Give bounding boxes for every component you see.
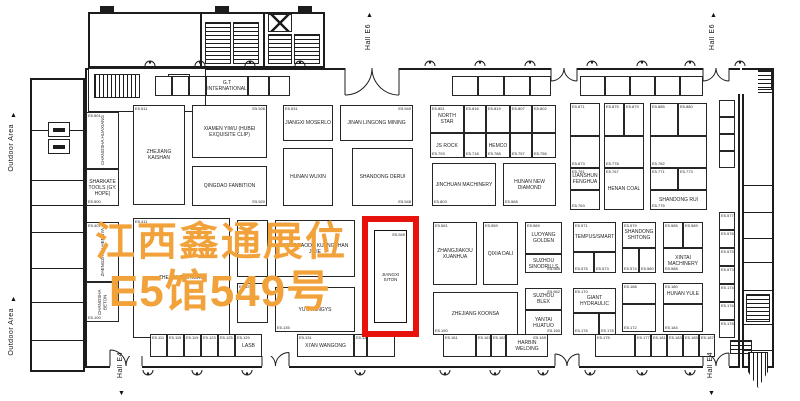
hall-e6-label: Hall E6 xyxy=(709,24,716,50)
booth-number: E5.807 xyxy=(512,107,525,111)
booth-number: E5.529 xyxy=(239,285,252,289)
booth: HARBIN WELDINGE5.169 xyxy=(506,334,548,357)
booth-number: E5.500 xyxy=(88,200,101,204)
booth: QINGDAO FANBITIONE5.520 xyxy=(192,166,267,206)
booth-number: E5.577 xyxy=(721,214,734,218)
booth-number: E5.176 xyxy=(721,304,734,308)
booth: E5.589 xyxy=(683,222,703,248)
booth: E5.183 xyxy=(667,334,683,357)
booth: YANTAI HUATUOE5.160 xyxy=(525,310,562,335)
booth-number: E5.575 xyxy=(575,267,588,271)
booth: JIANGXI MOSERLOE5.531 xyxy=(283,105,333,141)
booth: E5.819 xyxy=(486,105,510,133)
booth-number: E5.525 xyxy=(239,222,252,226)
booth: E5.111 xyxy=(150,334,167,357)
booth: E5.529 xyxy=(237,283,268,323)
booth: CHANGSHA BETONE5.100 xyxy=(86,282,119,322)
booth-label: HUNAN NEW DIAMOND xyxy=(504,179,555,191)
booth: ZHANGJIAKOU XUANHUAE5.561 xyxy=(433,222,477,285)
booth-label: HEMCO xyxy=(488,143,509,149)
booth xyxy=(172,76,189,96)
booth: E5.763 xyxy=(570,190,600,210)
booth xyxy=(680,76,703,96)
booth: E5.871 xyxy=(570,103,600,136)
booth: E5.168 xyxy=(622,283,656,304)
booth-number: E5.793 xyxy=(432,152,445,156)
booth-number: E5.100 xyxy=(88,316,101,320)
booth: HEMCOE5.788 xyxy=(486,133,510,158)
booth: ZHEJIANG KOONSAE5.150 xyxy=(433,292,518,335)
booth-label: TEMPUS/SMART xyxy=(574,234,616,240)
booth-number: E5.803 xyxy=(434,200,447,204)
booth-number: E5.531 xyxy=(285,107,298,111)
booth: E5.525 xyxy=(237,220,268,277)
booth-number: E5.782 xyxy=(652,162,665,166)
booth: E5.123 xyxy=(201,334,218,357)
booth-number: E5.819 xyxy=(488,107,501,111)
booth-label: ZHEJIANG ZHIGAO xyxy=(158,275,205,281)
booth: E5.119 xyxy=(184,334,201,357)
booth-number: E5.176 xyxy=(575,329,588,333)
booth: E5.175 xyxy=(595,334,635,357)
booth-number: E5.160 xyxy=(547,329,560,333)
booth: E5.580 xyxy=(639,248,656,273)
booth-number: E5.875 xyxy=(606,105,619,109)
booth: XIAMEN YIWU (HUBEI EXQUISITE CLIP)E5.526 xyxy=(192,105,267,158)
booth: E5.771 xyxy=(650,168,678,190)
booth: XINTAI MACHINERYE5.588 xyxy=(663,248,703,273)
down-arrow-icon: ▼ xyxy=(708,390,715,397)
booth-label: LASB xyxy=(241,343,256,349)
booth xyxy=(504,76,530,96)
booth: E5.782 xyxy=(650,136,707,168)
booth: E5.167 xyxy=(476,334,491,357)
booth-number: E5.871 xyxy=(572,105,585,109)
booth xyxy=(630,76,655,96)
booth-label: JINAN LINGONG MINING xyxy=(346,120,406,126)
booth-number: E5.401 xyxy=(88,224,101,228)
booth: E5.125 xyxy=(218,334,235,357)
booth-number: E5.575 xyxy=(721,250,734,254)
booth: E5.115 xyxy=(167,334,184,357)
booth-number: E5.576 xyxy=(721,232,734,236)
booth-number: E5.585 xyxy=(665,224,678,228)
booth-label: JS ROCK xyxy=(435,143,459,149)
booth-label: JIANGXI MOSERLO xyxy=(284,120,332,126)
booth-label: SHARKATE TOOLS (GY. HOPE) xyxy=(87,179,118,197)
booth-number: E5.131 xyxy=(299,336,312,340)
booth xyxy=(605,76,630,96)
booth-label: XIAMEN YIWU (HUBEI EXQUISITE CLIP) xyxy=(193,126,266,138)
booth-number: E5.561 xyxy=(435,224,448,228)
booth: E5.576 xyxy=(719,230,735,248)
booth: CHANGSHA HUAXIANGE5.501 xyxy=(86,112,119,169)
booth xyxy=(530,76,551,96)
up-arrow-icon: ▲ xyxy=(10,112,17,119)
booth: E5.174 xyxy=(719,284,735,302)
booth: JINAN LINGONG MININGE5.540 xyxy=(340,105,413,141)
booth: G.T INTERNATIONAL xyxy=(206,76,248,96)
booth-number: E5.187 xyxy=(701,336,714,340)
booth-number: E5.816 xyxy=(466,107,479,111)
booth-e5-549: E5.549 JIANGXI SITON xyxy=(374,230,407,323)
booth-label: HUNAN YULE xyxy=(666,291,700,297)
booth: NORTH STARE5.851 xyxy=(430,105,464,133)
booth: E5.880 xyxy=(678,103,707,136)
booth: E5.778 xyxy=(604,136,644,168)
booth-label: CHANGSHA HUAXIANG xyxy=(99,115,106,165)
hall-e6-label: Hall E6 xyxy=(365,24,372,50)
booth: SUZHOU SINODRILLSE5.565 xyxy=(525,254,562,273)
up-arrow-icon: ▲ xyxy=(710,12,717,19)
booth-number: E5.163 xyxy=(493,336,506,340)
booth-number: E5.775 xyxy=(652,204,665,208)
booth xyxy=(269,76,290,96)
booth-label: WANGJIAODU KUANGSHAN JIXIE xyxy=(276,243,354,255)
booth-label: QIXIA DALI xyxy=(487,251,515,257)
booth: ZHEJIANG ZHIGAOE5.411 xyxy=(133,218,230,338)
booth-number: E5.573 xyxy=(596,267,609,271)
booth: E5.757 xyxy=(510,133,532,158)
booth: E5.176 xyxy=(719,302,735,320)
booth-label: HUNAN WUXIN xyxy=(289,174,327,180)
booth: E5.178 xyxy=(719,320,735,338)
booth-number: E5.880 xyxy=(680,105,693,109)
booth-number: E5.177 xyxy=(637,336,650,340)
booth-label: YUTA XINGYS xyxy=(298,307,333,313)
booth-label: SHANDONG DERUI xyxy=(359,174,407,180)
booth xyxy=(719,100,735,117)
up-arrow-icon: ▲ xyxy=(10,296,17,303)
booth-number: E5.562 xyxy=(547,290,560,294)
booth: E5.807 xyxy=(510,105,532,133)
booth: SHARKATE TOOLS (GY. HOPE)E5.500 xyxy=(86,169,119,206)
booth xyxy=(719,134,735,151)
booth-label: G.T INTERNATIONAL xyxy=(206,80,248,92)
booth: E5.879 xyxy=(624,103,644,136)
booth-number: E5.565 xyxy=(547,267,560,271)
booth-number: E5.501 xyxy=(88,114,101,118)
booth: ZHEJIANG KAISHANE5.511 xyxy=(133,105,185,205)
booth: E5.873 xyxy=(570,136,600,168)
booth-label: LIANSHUN FENGHUA xyxy=(571,173,599,185)
booth: E5.885 xyxy=(650,103,678,136)
booth-label: YANTAI HUATUO xyxy=(526,317,561,329)
booth: E5.773 xyxy=(678,168,707,190)
booth-number: E5.175 xyxy=(597,336,610,340)
booth: E5.176 xyxy=(573,313,599,335)
booth: E5.177 xyxy=(635,334,651,357)
booth xyxy=(580,76,605,96)
booth-number: E5.161 xyxy=(445,336,458,340)
booth: E5.573 xyxy=(594,252,616,273)
booth-number: E5.174 xyxy=(721,286,734,290)
booth-label: HARBIN WELDING xyxy=(507,340,547,352)
booth: LUOYANG GOLDENE5.569 xyxy=(525,222,562,254)
booth-number: E5.574 xyxy=(624,267,637,271)
booth: E5.756 xyxy=(532,133,556,158)
booth-number: E5.589 xyxy=(685,224,698,228)
booth-number: E5.135 xyxy=(277,326,290,330)
booth-number: E5.718 xyxy=(466,152,479,156)
booth-label: JINCHUAN MACHINERY xyxy=(435,182,494,188)
booth: E5.184 xyxy=(663,304,703,332)
booth-number: E5.548 xyxy=(398,200,411,204)
booth-number: E5.756 xyxy=(534,152,547,156)
booth: E5.161 xyxy=(443,334,476,357)
booth: E5.573 xyxy=(719,266,735,284)
booth xyxy=(367,334,395,357)
booth-number: E5.123 xyxy=(203,336,216,340)
booth-number: E5.184 xyxy=(665,326,678,330)
booth: E5.575 xyxy=(573,252,594,273)
booth xyxy=(248,76,269,96)
booth-number: E5.181 xyxy=(653,336,666,340)
booth-number: E5.571 xyxy=(575,224,588,228)
booth: E5.575 xyxy=(719,248,735,266)
booth-label: LUOYANG GOLDEN xyxy=(526,232,561,244)
booth: JINCHUAN MACHINERYE5.803 xyxy=(432,163,496,206)
booth-number: E5.526 xyxy=(252,107,265,111)
booth-number: E5.178 xyxy=(601,329,614,333)
booth-number: E5.588 xyxy=(665,267,678,271)
booth-label: ZHEJIANG KOONSA xyxy=(451,311,501,317)
booth-label: SHANDONG SHITONG xyxy=(623,229,655,241)
booth: E5.574 xyxy=(622,248,639,273)
booth-number: E5.573 xyxy=(721,268,734,272)
booth-number: E5.885 xyxy=(652,105,665,109)
booth-label: GIANT HYDRAULIC xyxy=(574,295,615,307)
booth-label: ZHEJIANG KAISHAN xyxy=(134,149,184,161)
booth-number: E5.180 xyxy=(665,285,678,289)
booth: HUNAN YULEE5.180 xyxy=(663,283,703,304)
booth-number: E5.767 xyxy=(606,170,619,174)
booth: ZHENGZHOU HENGYAE5.401 xyxy=(86,222,119,282)
outdoor-area-label: Outdoor Area xyxy=(8,308,15,356)
booth: SHANDONG DERUIE5.548 xyxy=(352,148,413,206)
exhibition-floor-plan: CHANGSHA HUAXIANGE5.501SHARKATE TOOLS (G… xyxy=(0,0,800,401)
booth-label: XI'AN WANGONG xyxy=(304,343,347,349)
booth-number: E5.169 xyxy=(533,336,546,340)
hall-e4-label: Hall E4 xyxy=(117,352,124,378)
booth-number: E5.167 xyxy=(478,336,491,340)
booth: E5.577 xyxy=(719,212,735,230)
booth: GIANT HYDRAULICE5.170 xyxy=(573,288,616,313)
booth: LIANSHUN FENGHUAE5.761 xyxy=(570,168,600,190)
booth-number: E5.150 xyxy=(435,329,448,333)
booth-number: E5.168 xyxy=(624,285,637,289)
booth-number: E5.185 xyxy=(685,336,698,340)
booth: E5.802 xyxy=(532,105,556,133)
booth-label: NORTH STAR xyxy=(431,113,463,125)
booth-number: E5.873 xyxy=(572,162,585,166)
booth-number: E5.763 xyxy=(572,204,585,208)
booth-number: E5.569 xyxy=(527,224,540,228)
booth-number: E5.125 xyxy=(220,336,233,340)
booths-layer: CHANGSHA HUAXIANGE5.501SHARKATE TOOLS (G… xyxy=(0,0,800,401)
booth-number: E5.520 xyxy=(252,200,265,204)
booth-number: E5.568 xyxy=(505,200,518,204)
booth-number: E5.183 xyxy=(669,336,682,340)
booth: E5.185 xyxy=(683,334,699,357)
booth-number: E5.537 xyxy=(277,222,290,226)
booth: SHANDONG RUIE5.775 xyxy=(650,190,707,210)
booth: E5.139 xyxy=(354,334,367,357)
booth-number: E5.559 xyxy=(485,224,498,228)
booth: E5.585 xyxy=(663,222,683,248)
booth-number: E5.802 xyxy=(534,107,547,111)
booth xyxy=(719,151,735,168)
booth: WANGJIAODU KUANGSHAN JIXIEE5.537 xyxy=(275,220,355,277)
booth-number: E5.579 xyxy=(624,224,637,228)
booth-number: E5.129 xyxy=(237,336,250,340)
down-arrow-icon: ▼ xyxy=(118,390,125,397)
booth-number: E5.119 xyxy=(186,336,198,340)
booth-number: E5.761 xyxy=(572,170,585,174)
booth-number: E5.851 xyxy=(432,107,445,111)
booth-label: JIANGXI SITON xyxy=(375,272,406,282)
booth: E5.163 xyxy=(491,334,506,357)
booth-number: E5.511 xyxy=(135,107,147,111)
booth-number: E5.771 xyxy=(652,170,665,174)
booth xyxy=(452,76,478,96)
booth xyxy=(155,76,172,96)
booth-number: E5.178 xyxy=(721,322,734,326)
booth: LASBE5.129 xyxy=(235,334,262,357)
highlight-frame: E5.549 JIANGXI SITON xyxy=(362,216,419,337)
booth-number: E5.540 xyxy=(398,107,411,111)
booth xyxy=(719,117,735,134)
booth-number: E5.111 xyxy=(152,336,164,340)
booth-label: ZHANGJIAKOU XUANHUA xyxy=(434,248,476,260)
booth-number: E5.788 xyxy=(488,152,501,156)
booth: E5.816 xyxy=(464,105,486,133)
booth: E5.172 xyxy=(622,304,656,332)
booth: XI'AN WANGONGE5.131 xyxy=(297,334,354,357)
booth-number: E5.757 xyxy=(512,152,525,156)
booth: SHANDONG SHITONGE5.579 xyxy=(622,222,656,248)
booth: E5.718 xyxy=(464,133,486,158)
booth xyxy=(655,76,680,96)
booth: HUNAN WUXIN xyxy=(283,148,333,206)
booth-label: QINGDAO FANBITION xyxy=(203,183,256,189)
booth: HUNAN NEW DIAMONDE5.568 xyxy=(503,163,556,206)
booth: HENAN COALE5.767 xyxy=(604,168,644,210)
booth: TEMPUS/SMARTE5.571 xyxy=(573,222,616,252)
up-arrow-icon: ▲ xyxy=(366,12,373,19)
booth: SUZHOU BLEXE5.562 xyxy=(525,288,562,310)
booth-label: ZHENGZHOU HENGYA xyxy=(99,228,106,276)
booth: YUTA XINGYSE5.135 xyxy=(275,287,355,332)
outdoor-area-label: Outdoor Area xyxy=(8,124,15,172)
booth-number: E5.773 xyxy=(680,170,693,174)
booth: QIXIA DALIE5.559 xyxy=(483,222,518,285)
booth: E5.875 xyxy=(604,103,624,136)
booth-label: HENAN COAL xyxy=(607,186,642,192)
booth-number: E5.778 xyxy=(606,162,619,166)
booth-label: XINTAI MACHINERY xyxy=(664,255,702,267)
booth-number: E5.580 xyxy=(641,267,654,271)
booth-number: E5.879 xyxy=(626,105,639,109)
booth-number: E5.549 xyxy=(392,232,405,237)
booth-label: SUZHOU BLEX xyxy=(526,293,561,305)
booth: JS ROCKE5.793 xyxy=(430,133,464,158)
booth xyxy=(189,76,206,96)
booth-number: E5.115 xyxy=(169,336,181,340)
booth-number: E5.411 xyxy=(135,220,147,224)
booth: E5.178 xyxy=(599,313,616,335)
booth xyxy=(478,76,504,96)
booth: E5.181 xyxy=(651,334,667,357)
hall-e4-label: Hall E4 xyxy=(707,352,714,378)
booth-number: E5.172 xyxy=(624,326,637,330)
booth-number: E5.170 xyxy=(575,290,588,294)
